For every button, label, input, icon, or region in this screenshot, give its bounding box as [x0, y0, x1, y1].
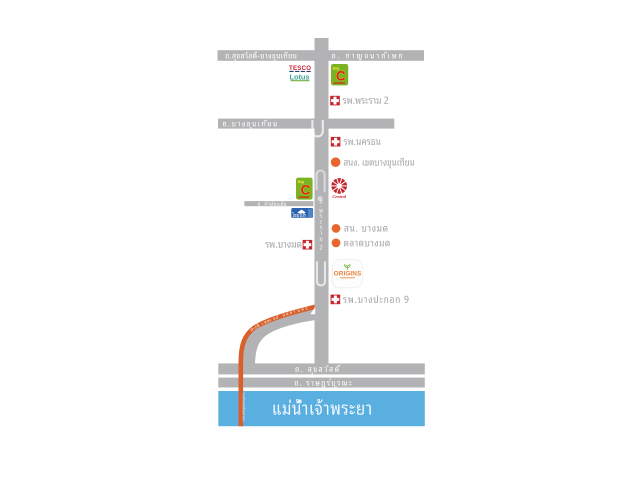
svg-text:Central: Central [332, 194, 346, 199]
svg-text:ORIGINS: ORIGINS [334, 271, 362, 278]
svg-text:C: C [336, 68, 346, 83]
svg-text:C: C [300, 181, 310, 197]
